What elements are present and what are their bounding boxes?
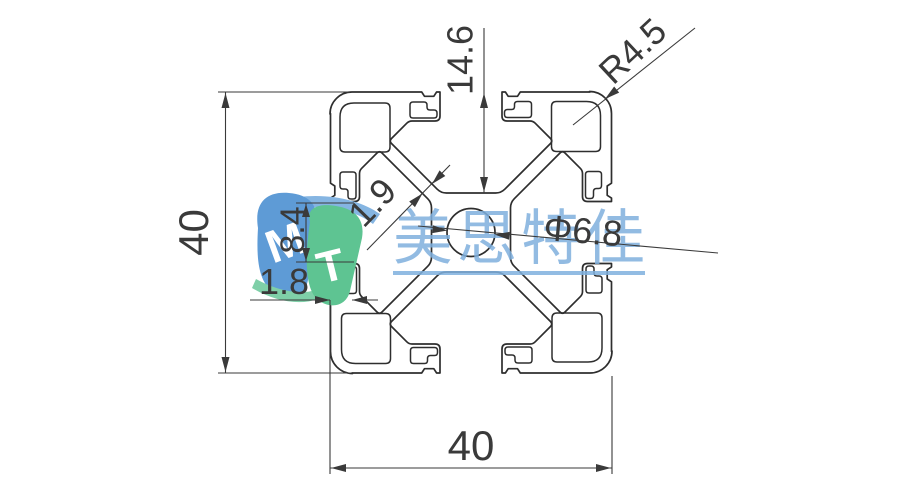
arrowhead [222, 93, 230, 108]
dim-label-width: 40 [448, 422, 495, 469]
dim-label-height: 40 [170, 209, 217, 256]
arrowhead [480, 93, 488, 108]
corner-cavity [340, 103, 390, 152]
dim-label-slot-opening: 8.4 [274, 206, 312, 253]
slot-hook-cavity-top [410, 102, 437, 118]
arrowhead [331, 464, 346, 472]
dim-corner-radius: R4.5 [573, 10, 695, 125]
dim-overall-width: 40 [330, 300, 612, 474]
watermark-underline [393, 271, 645, 275]
dim-label-wall-thickness: 1.8 [259, 261, 309, 302]
dim-label-center-hole: Φ6.8 [542, 207, 624, 255]
arrowhead [222, 357, 230, 372]
arrowhead [352, 296, 367, 304]
dim-label-slot-depth: 14.6 [440, 25, 481, 95]
dim-label-corner-radius: R4.5 [591, 10, 675, 92]
technical-drawing: M T 美思特佳 40 40 [0, 0, 900, 500]
drawing-canvas: M T 美思特佳 40 40 [0, 0, 900, 500]
arrowhead [596, 464, 611, 472]
arrowhead [480, 177, 488, 192]
